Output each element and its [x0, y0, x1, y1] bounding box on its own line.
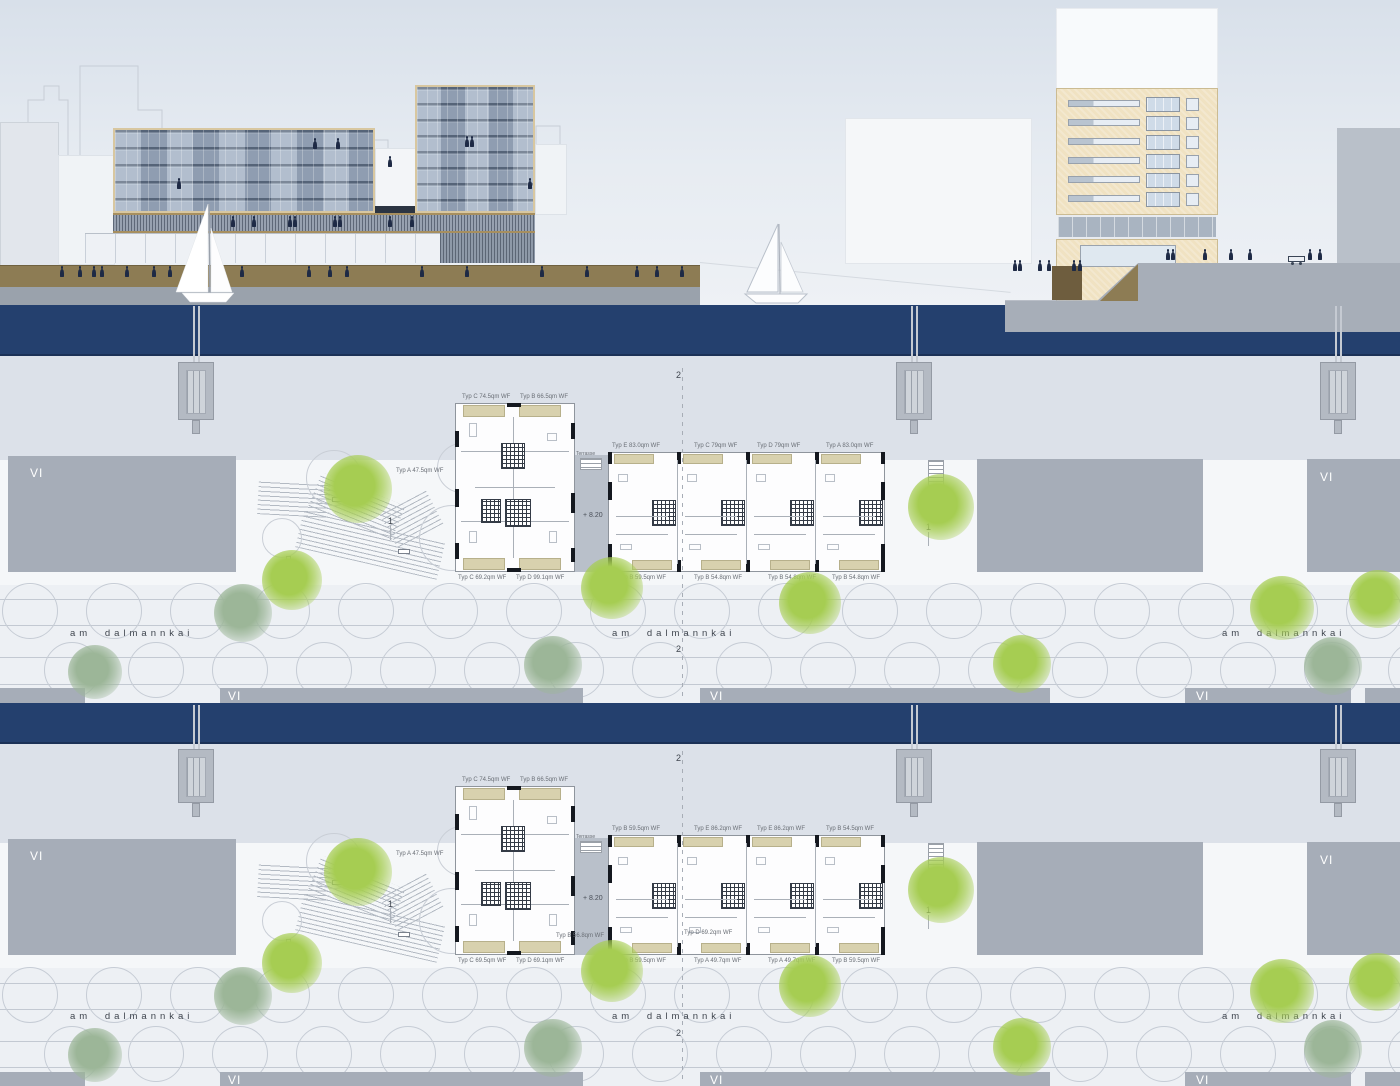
level-annotation: + 8.20 [583, 895, 603, 902]
terrace-annotation: Terrasse [576, 834, 595, 841]
person-silhouette [1166, 252, 1170, 260]
stair-core-hatch [652, 883, 676, 909]
unit-type-label: Typ B 66.5qm WF [520, 777, 568, 784]
car-wheel-left [1291, 262, 1294, 265]
wall-segment [455, 814, 459, 830]
person-silhouette [60, 269, 64, 277]
person-silhouette [252, 219, 256, 227]
section-marker-2: 2 [676, 644, 681, 654]
car-wheel-right [1299, 262, 1302, 265]
partition-line [815, 460, 816, 564]
person-silhouette [1171, 252, 1175, 260]
tower-window [1146, 173, 1180, 188]
tree [908, 857, 974, 923]
tree-pit-circle [338, 967, 394, 1023]
balcony-strip [632, 560, 672, 570]
pier-mast [911, 705, 913, 749]
architectural-poster: am dalmannkaiam dalmannkaiam dalmannkaia… [0, 0, 1400, 1086]
furniture [689, 544, 701, 550]
person-silhouette [680, 269, 684, 277]
furniture [756, 474, 766, 482]
person-silhouette [307, 269, 311, 277]
partition-line [616, 899, 668, 900]
wall-segment [881, 835, 885, 847]
tree [581, 557, 643, 619]
person-silhouette [293, 219, 297, 227]
balcony-strip [463, 788, 505, 800]
tower-window-small [1186, 174, 1199, 187]
partition-line [677, 843, 678, 947]
tree-pit-circle [338, 583, 394, 639]
tree [908, 474, 974, 540]
wall-segment [571, 423, 575, 439]
pier-stub [192, 803, 200, 817]
tree [779, 955, 841, 1017]
stair-core-hatch [859, 500, 883, 526]
furniture [469, 914, 477, 926]
unit-type-label: Typ D 79qm WF [757, 443, 800, 450]
block-label: VI [1320, 854, 1333, 866]
section-marker-1: 1 [388, 899, 393, 909]
adjacent-block-south [0, 688, 85, 703]
tower-window-strip [1068, 138, 1140, 145]
tower-window [1146, 135, 1180, 150]
pier-stub [1334, 803, 1342, 817]
tree [262, 933, 322, 993]
partition-line [521, 451, 569, 452]
balcony-strip [752, 837, 792, 847]
wall-segment [455, 926, 459, 942]
person-silhouette [1308, 252, 1312, 260]
furniture [758, 544, 770, 550]
tower-window [1146, 116, 1180, 131]
tree [1250, 959, 1314, 1023]
pier-mast [198, 705, 200, 749]
wall-segment [455, 489, 459, 507]
stair-core-hatch [652, 500, 676, 526]
partition-line [475, 870, 555, 871]
pier-mast [198, 306, 200, 362]
balcony-strip [701, 560, 741, 570]
unit-type-label: Typ B 59.5qm WF [832, 958, 880, 965]
unit-type-label: Typ C 69.2qm WF [458, 575, 506, 582]
tree [68, 645, 122, 699]
wall-segment [455, 431, 459, 447]
person-silhouette [333, 219, 337, 227]
unit-type-label: Typ E 86.2qm WF [757, 826, 805, 833]
partition-line [685, 534, 737, 535]
section-marker-2: 2 [676, 753, 681, 763]
tower-window-strip [1068, 119, 1140, 126]
person-silhouette [125, 269, 129, 277]
balcony-strip [614, 454, 654, 464]
wall-segment [608, 835, 612, 847]
sailboat-left-jib [211, 228, 232, 292]
person-silhouette [152, 269, 156, 277]
person-silhouette [420, 269, 424, 277]
balcony-strip [770, 943, 810, 953]
stair-core-hatch [481, 499, 501, 523]
block-label: VI [1196, 1074, 1209, 1086]
unit-type-label: Typ B 56.8qm WF [556, 933, 604, 940]
tree [1304, 637, 1362, 695]
pier-mast [911, 306, 913, 362]
person-silhouette [328, 269, 332, 277]
person-silhouette [1047, 263, 1051, 271]
unit-type-label: Typ B 66.5qm WF [520, 394, 568, 401]
tree [581, 940, 643, 1002]
block-label: VI [710, 690, 723, 702]
tree-pit-circle [1052, 1026, 1108, 1082]
balcony-strip [519, 941, 561, 953]
furniture [469, 806, 477, 820]
street-line [0, 1067, 1400, 1068]
block-label: VI [710, 1074, 723, 1086]
person-silhouette [1318, 252, 1322, 260]
unit-type-label: Typ A 47.5qm WF [396, 851, 443, 858]
sailboat-right-mast [779, 224, 780, 294]
pier-mast [1340, 705, 1342, 749]
tower-window-strip [1068, 157, 1140, 164]
section-line [682, 751, 683, 1083]
pier-pontoon-deck [904, 370, 924, 414]
person-silhouette [1072, 263, 1076, 271]
right-tower-earth-wall [1052, 266, 1082, 300]
tree-pit-circle [128, 642, 184, 698]
partition-line [754, 534, 806, 535]
person-silhouette [338, 219, 342, 227]
furniture [827, 927, 839, 933]
tower-window-small [1186, 98, 1199, 111]
tower-base-texture [440, 233, 535, 263]
tree-pit-circle [506, 967, 562, 1023]
tower-window-strip [1068, 195, 1140, 202]
person-silhouette [465, 139, 469, 147]
pier-stub [192, 420, 200, 434]
partition-line [616, 516, 668, 517]
furniture [469, 423, 477, 437]
parked-car [1288, 256, 1305, 262]
quay-olive-strip [0, 265, 700, 287]
person-silhouette [388, 159, 392, 167]
pier-stub [910, 420, 918, 434]
balcony-strip [519, 405, 561, 417]
partition-line [823, 899, 875, 900]
unit-type-label: Typ A 47.5qm WF [396, 468, 443, 475]
wall-segment [608, 865, 612, 883]
stair-core-hatch [859, 883, 883, 909]
partition-line [823, 516, 875, 517]
furniture [547, 433, 557, 441]
furniture [758, 927, 770, 933]
gap-stair [580, 458, 602, 470]
pier-pontoon-deck [904, 757, 924, 797]
tree-pit-circle [1136, 1026, 1192, 1082]
tower-window-strip [1068, 176, 1140, 183]
level-annotation: + 8.20 [583, 512, 603, 519]
stair-core-hatch [501, 443, 525, 469]
right-tower-glass-band [1058, 215, 1216, 239]
wall-segment [507, 786, 521, 790]
left-background-block [0, 122, 59, 267]
partition-line [754, 917, 806, 918]
person-silhouette [1229, 252, 1233, 260]
unit-type-label: Typ A 83.0qm WF [826, 443, 873, 450]
sailboat-right-hull [745, 294, 807, 303]
tree [1349, 570, 1400, 628]
tree [524, 636, 582, 694]
partition-line [754, 516, 806, 517]
balcony-strip [821, 454, 861, 464]
section-marker-2: 2 [676, 1028, 681, 1038]
furniture [825, 857, 835, 865]
furniture [620, 544, 632, 550]
tree [779, 572, 841, 634]
person-silhouette [240, 269, 244, 277]
person-silhouette [410, 219, 414, 227]
unit-type-label: Typ A 49.7qm WF [694, 958, 741, 965]
person-silhouette [528, 181, 532, 189]
tree-pit-circle [2, 967, 58, 1023]
unit-type-label: Typ E 86.2qm WF [694, 826, 742, 833]
adjacent-block-south [1365, 688, 1400, 703]
partition-line [616, 534, 668, 535]
tree-pit-circle [1094, 583, 1150, 639]
tree-pit-circle [1010, 583, 1066, 639]
right-background-block [845, 118, 1032, 264]
sailboat-left-hull [182, 293, 234, 302]
tower-window [1146, 97, 1180, 112]
tree-pit-circle [506, 583, 562, 639]
balcony-strip [701, 943, 741, 953]
street-name-label: am dalmannkai [612, 1011, 735, 1022]
furniture [825, 474, 835, 482]
pier-mast [1335, 306, 1337, 362]
section-marker-tick [390, 909, 391, 923]
tree [993, 1018, 1051, 1076]
tree [324, 455, 392, 523]
adjacent-block-south [220, 688, 583, 703]
wall-segment [881, 482, 885, 500]
water-band-2 [0, 703, 1400, 744]
wall-segment [881, 452, 885, 464]
unit-type-label: Typ D 99.1qm WF [516, 575, 564, 582]
balcony-strip [839, 943, 879, 953]
partition-line [823, 917, 875, 918]
stair-core-hatch [721, 500, 745, 526]
street-name-label: am dalmannkai [612, 628, 735, 639]
unit-type-label: Typ B 59.5qm WF [612, 826, 660, 833]
sailboat-left-mainsail [176, 204, 208, 292]
partition-line [685, 899, 737, 900]
tree [993, 635, 1051, 693]
gap-stair [580, 841, 602, 853]
balcony-strip [752, 454, 792, 464]
furniture [827, 544, 839, 550]
section-marker-tick [390, 526, 391, 540]
person-silhouette [345, 269, 349, 277]
person-silhouette [465, 269, 469, 277]
tower-window-small [1186, 117, 1199, 130]
stair-core-hatch [505, 499, 531, 527]
wall-segment [608, 452, 612, 464]
person-silhouette [1038, 263, 1042, 271]
tree [214, 967, 272, 1025]
adjacent-block [977, 459, 1203, 572]
street-line [0, 1041, 1400, 1042]
furniture [547, 816, 557, 824]
sailboat-right [733, 220, 817, 306]
adjacent-block-south [700, 1072, 1050, 1086]
wall-segment [455, 543, 459, 559]
storefront-base [85, 233, 440, 263]
person-silhouette [231, 219, 235, 227]
furniture [549, 531, 557, 543]
balcony-strip [839, 560, 879, 570]
person-silhouette [288, 219, 292, 227]
street-line [0, 657, 1400, 658]
block-label: VI [228, 1074, 241, 1086]
person-silhouette [1018, 263, 1022, 271]
person-silhouette [655, 269, 659, 277]
partition-line [754, 899, 806, 900]
quay-ground-strip [0, 287, 700, 305]
building-behind-gap [375, 148, 419, 208]
person-silhouette [540, 269, 544, 277]
balcony-strip [821, 837, 861, 847]
pier-mast [193, 705, 195, 749]
pier-mast [1340, 306, 1342, 362]
person-silhouette [1078, 263, 1082, 271]
street-name-label: am dalmannkai [70, 628, 193, 639]
pier-mast [916, 306, 918, 362]
person-silhouette [388, 219, 392, 227]
stair-core-hatch [721, 883, 745, 909]
furniture [469, 531, 477, 543]
pier-pontoon-deck [186, 370, 206, 414]
sailboat-right-jib [781, 242, 803, 292]
pier-stub [910, 803, 918, 817]
block-label: VI [228, 690, 241, 702]
unit-type-label: Typ B 54.8qm WF [694, 575, 742, 582]
street-name-label: am dalmannkai [70, 1011, 193, 1022]
pier-mast [916, 705, 918, 749]
furniture [618, 474, 628, 482]
wall-segment [507, 568, 521, 572]
unit-type-label: Typ C 69.5qm WF [458, 958, 506, 965]
tree-pit-circle [422, 583, 478, 639]
tree [324, 838, 392, 906]
unit-type-label: Typ B 54.8qm WF [832, 575, 880, 582]
street-line [0, 684, 1400, 685]
tree-pit-circle [842, 583, 898, 639]
person-silhouette [585, 269, 589, 277]
tower-window [1146, 192, 1180, 207]
sailboat-left-mast [209, 204, 210, 292]
adjacent-block-south [0, 1072, 85, 1086]
tree-pit-circle [1052, 642, 1108, 698]
balcony-strip [683, 454, 723, 464]
pier-mast [193, 306, 195, 362]
tree [1349, 953, 1400, 1011]
furniture [687, 857, 697, 865]
unit-type-label: Typ B 54.5qm WF [826, 826, 874, 833]
person-silhouette [336, 141, 340, 149]
wall-segment [881, 927, 885, 945]
person-silhouette [78, 269, 82, 277]
section-marker-1: 1 [388, 516, 393, 526]
partition-line [685, 516, 737, 517]
section-line [682, 368, 683, 700]
balcony-strip [519, 788, 561, 800]
sailboat-right-mainsail [747, 224, 778, 292]
tree-pit-circle [1136, 642, 1192, 698]
furniture [549, 914, 557, 926]
balcony-strip [519, 558, 561, 570]
person-silhouette [313, 141, 317, 149]
block-label: VI [1320, 471, 1333, 483]
balcony-strip [683, 837, 723, 847]
unit-type-label: Typ D 69.1qm WF [516, 958, 564, 965]
unit-type-label: Typ C 79qm WF [694, 443, 737, 450]
partition-line [823, 534, 875, 535]
tree-pit-circle [926, 967, 982, 1023]
partition-line [616, 917, 668, 918]
tree-pit-circle [422, 967, 478, 1023]
terrace-bench [398, 549, 410, 554]
tower-window-small [1186, 193, 1199, 206]
pier-mast [1335, 705, 1337, 749]
balcony-strip [463, 941, 505, 953]
person-silhouette [635, 269, 639, 277]
block-label: VI [30, 850, 43, 862]
tree [68, 1028, 122, 1082]
tree [262, 550, 322, 610]
building-right-of-tower [535, 144, 567, 215]
balcony-strip [614, 837, 654, 847]
wall-segment [881, 865, 885, 883]
section-marker-2: 2 [676, 370, 681, 380]
stair-core-hatch [790, 883, 814, 909]
person-silhouette [92, 269, 96, 277]
tree [214, 584, 272, 642]
sailboat-left [168, 200, 246, 304]
balcony-strip [632, 943, 672, 953]
wall-segment [507, 403, 521, 407]
unit-type-label: Typ D 69.2qm WF [684, 930, 732, 937]
person-silhouette [100, 269, 104, 277]
adjacent-block [977, 842, 1203, 955]
block-label: VI [30, 467, 43, 479]
wall-segment [881, 544, 885, 562]
tree [1304, 1020, 1362, 1078]
tower-window-strip [1068, 100, 1140, 107]
balcony-strip [463, 558, 505, 570]
unit-type-label: Typ C 74.5qm WF [462, 777, 510, 784]
terrace-bench [398, 932, 410, 937]
furniture [756, 857, 766, 865]
person-silhouette [177, 181, 181, 189]
tree-pit-circle [842, 967, 898, 1023]
wall-segment [608, 482, 612, 500]
wall-segment [507, 951, 521, 955]
partition-line [521, 834, 569, 835]
furniture [620, 927, 632, 933]
stair-core-hatch [505, 882, 531, 910]
partition-line [746, 460, 747, 564]
wall-segment [571, 806, 575, 822]
partition-line [746, 843, 747, 947]
